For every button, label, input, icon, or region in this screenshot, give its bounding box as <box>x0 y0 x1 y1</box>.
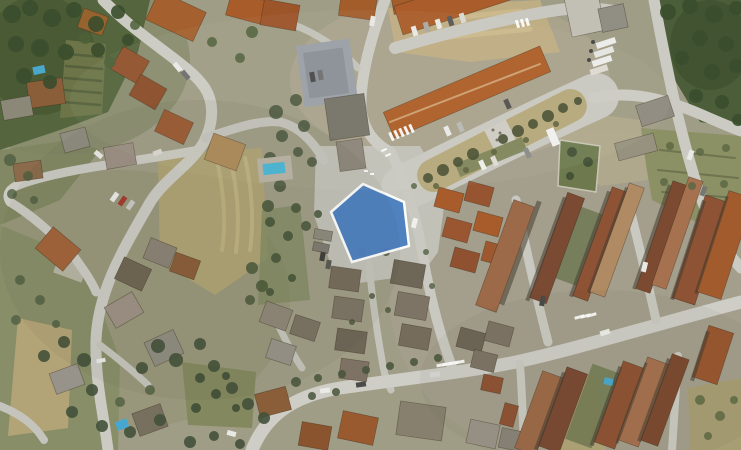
building <box>398 324 431 351</box>
tree <box>122 34 134 46</box>
tree <box>209 431 219 441</box>
tree <box>705 5 723 23</box>
tree <box>96 420 108 432</box>
street-tree <box>314 374 322 382</box>
garden-shrub <box>688 182 696 190</box>
tree <box>660 4 676 20</box>
tree <box>43 9 61 27</box>
tree <box>79 32 91 44</box>
tree <box>86 384 98 396</box>
tree <box>3 5 21 23</box>
garden-shrub <box>666 142 674 150</box>
garden-shrub <box>720 180 728 188</box>
tree <box>66 406 78 418</box>
garden-shrub <box>696 148 704 156</box>
shrub <box>423 249 429 255</box>
tree <box>31 39 49 57</box>
shrub <box>11 315 21 325</box>
tree <box>235 439 245 449</box>
tree <box>38 350 50 362</box>
tree <box>675 51 689 65</box>
shrub <box>429 283 435 289</box>
tree <box>66 2 82 18</box>
street-tree <box>362 366 370 374</box>
building <box>394 291 430 320</box>
tree <box>16 68 32 84</box>
street-tree <box>332 388 340 396</box>
shade-haze <box>0 100 400 400</box>
tree <box>258 412 270 424</box>
building <box>598 4 628 33</box>
aerial-map-view[interactable] <box>0 0 741 450</box>
tree <box>115 397 125 407</box>
tree <box>8 36 24 52</box>
tree <box>242 398 254 410</box>
garden-shrub <box>722 144 730 152</box>
shrub <box>4 154 16 166</box>
street-tree <box>386 362 394 370</box>
tree <box>566 172 574 180</box>
tree <box>111 5 125 19</box>
tree <box>154 414 166 426</box>
tree <box>191 403 201 413</box>
tree <box>715 95 729 109</box>
street-tree <box>308 392 316 400</box>
tree <box>91 43 105 57</box>
tree <box>58 44 74 60</box>
street-tree <box>410 358 418 366</box>
garden-shrub <box>660 178 668 186</box>
tree <box>718 36 734 52</box>
tree <box>22 0 38 16</box>
shrub <box>385 307 391 313</box>
tree <box>704 64 720 80</box>
tree <box>130 20 140 30</box>
tree <box>232 404 240 412</box>
tree <box>184 436 196 448</box>
street-tree <box>338 370 346 378</box>
satellite-image <box>0 0 741 450</box>
building <box>298 422 332 450</box>
tree <box>689 89 703 103</box>
tree <box>43 75 57 89</box>
tree <box>88 16 104 32</box>
tree <box>692 30 708 46</box>
